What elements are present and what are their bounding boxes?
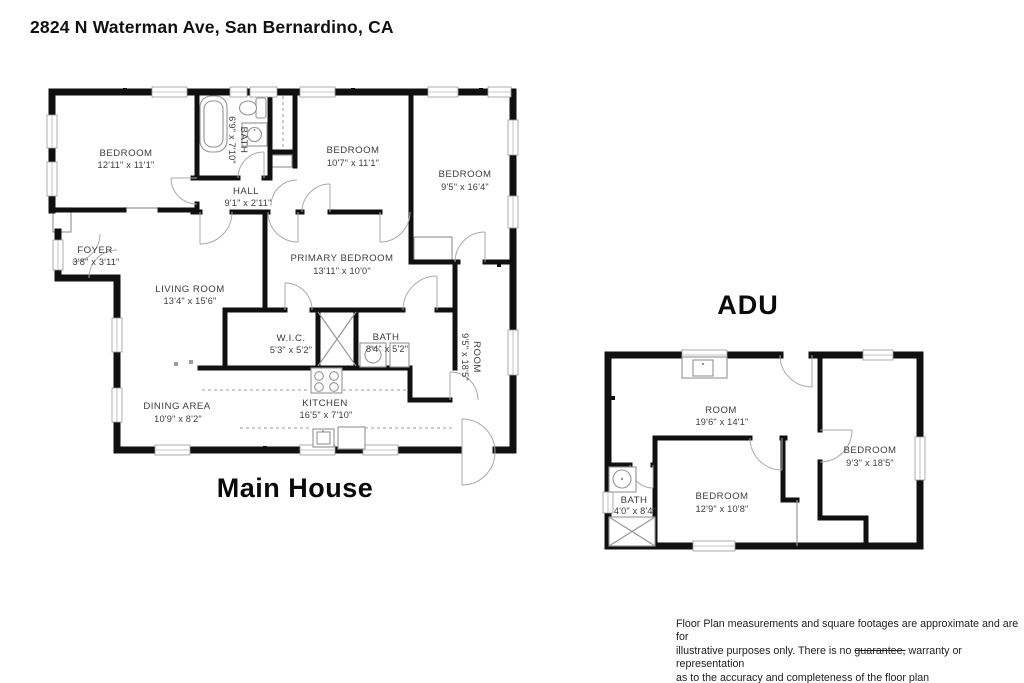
main-house-label: Main House	[181, 473, 409, 504]
adu-plan: ROOM 19'6" x 14'1" BEDROOM 9'3" x 18'5" …	[603, 350, 925, 551]
room-dims-bath1: 6'9" x 7'10"	[227, 116, 237, 164]
room-dims-adu-bath: 4'0" x 8'4"	[614, 506, 656, 516]
room-label-adu-bedroom-right: BEDROOM	[843, 445, 896, 456]
room-label-living: LIVING ROOM	[155, 284, 224, 295]
adu-shower-icon	[609, 517, 655, 546]
disclaimer-line2-struck: guarantee,	[854, 645, 905, 657]
adu-bath-sink-icon	[609, 467, 636, 492]
room-dims-adu-room: 19'6" x 14'1"	[696, 417, 749, 427]
adu-label: ADU	[700, 290, 796, 321]
linen-closet-x	[318, 312, 356, 366]
disclaimer-line2-pre: illustrative purposes only. There is no	[676, 645, 854, 657]
main-house-doors	[72, 152, 495, 485]
room-label-hall: HALL	[233, 186, 259, 197]
room-dims-dining: 10'9" x 8'2"	[154, 414, 202, 424]
disclaimer-line3: as to the accuracy and completeness of t…	[676, 672, 929, 683]
room-label-bath2: BATH	[373, 332, 400, 343]
room-dims-foyer: 3'8" x 3'11"	[73, 257, 120, 267]
room-dims-bedroom3: 9'5" x 16'4"	[441, 182, 489, 192]
room-label-sideroom: ROOM	[471, 341, 482, 373]
adu-vanity-icon	[682, 357, 727, 378]
adu-wall-tick	[611, 396, 615, 400]
room-dims-adu-bedroom-bottom: 12'9" x 10'8"	[696, 504, 749, 514]
room-label-bedroom1: BEDROOM	[99, 148, 152, 159]
toilet-icon	[240, 98, 267, 118]
dining-light-dots	[174, 360, 193, 366]
room-dims-adu-bedroom-right: 9'3" x 18'5"	[846, 458, 894, 468]
wall-ticks	[123, 88, 501, 450]
room-dims-kitchen: 16'5" x 7'10"	[300, 410, 353, 420]
room-dims-sideroom: 9'5" x 18'5"	[460, 333, 470, 381]
room-dims-bedroom2: 10'7" x 11'1"	[327, 158, 379, 168]
disclaimer-text: Floor Plan measurements and square foota…	[676, 618, 1021, 683]
room-label-adu-bedroom-bottom: BEDROOM	[695, 491, 748, 502]
room-label-bedroom3: BEDROOM	[438, 169, 491, 180]
dishwasher-icon	[338, 427, 365, 449]
room-label-bath1: BATH	[238, 127, 249, 154]
room-dims-hall: 9'1" x 2'11"	[225, 198, 272, 208]
room-dims-wic: 5'3" x 5'2"	[270, 345, 312, 355]
stove-icon	[311, 368, 342, 393]
main-house-plan: BEDROOM 12'11" x 11'1" BATH 6'9" x 7'10"…	[47, 87, 518, 485]
bathtub-icon	[200, 96, 227, 152]
room-label-kitchen: KITCHEN	[302, 398, 348, 409]
room-dims-bath2: 8'4" x 5'2"	[366, 344, 408, 354]
room-label-foyer: FOYER	[77, 245, 113, 256]
room-label-adu-bath: BATH	[621, 495, 648, 506]
floor-plan-page: 2824 N Waterman Ave, San Bernardino, CA	[0, 0, 1024, 683]
room-dims-primary: 13'11" x 10'0"	[313, 266, 371, 276]
room-label-wic: W.I.C.	[276, 333, 305, 344]
room-dims-bedroom1: 12'11" x 11'1"	[98, 160, 155, 170]
room-label-bedroom2: BEDROOM	[326, 145, 379, 156]
room-dims-living: 13'4" x 15'6"	[164, 296, 217, 306]
room-label-adu-room: ROOM	[705, 405, 737, 416]
disclaimer-line1: Floor Plan measurements and square foota…	[676, 618, 1018, 643]
kitchen-sink-icon	[313, 429, 334, 447]
main-house-room-labels: BEDROOM 12'11" x 11'1" BATH 6'9" x 7'10"…	[73, 116, 492, 424]
room-label-dining: DINING AREA	[143, 401, 210, 412]
room-label-primary: PRIMARY BEDROOM	[290, 253, 393, 264]
floor-plan-drawing: BEDROOM 12'11" x 11'1" BATH 6'9" x 7'10"…	[0, 0, 1024, 683]
